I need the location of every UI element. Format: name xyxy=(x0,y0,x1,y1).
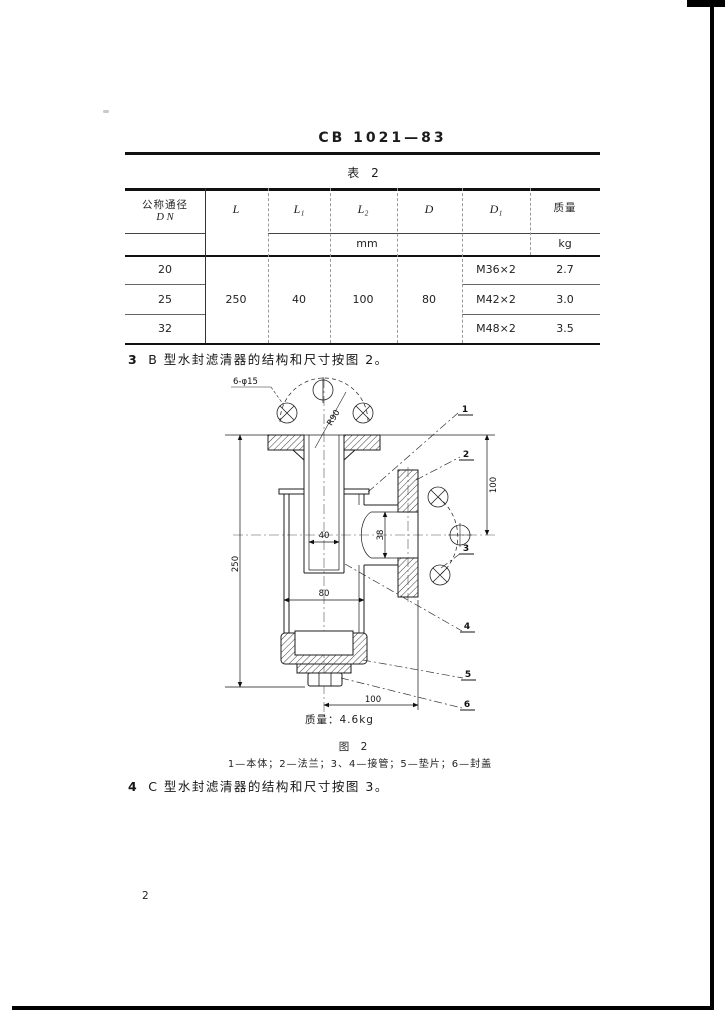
section-4-number: 4 xyxy=(128,779,138,794)
scanned-standard-page: CB 1021—83 表 2 公称通径 D N L L₁ L₂ D D₁ 质量 … xyxy=(0,0,725,1024)
scan-edge-bottom xyxy=(12,1006,714,1010)
cell-thread-0: M36×2 xyxy=(476,263,516,276)
scan-speck xyxy=(103,110,109,113)
cell-dn-20: 20 xyxy=(158,263,172,276)
col-header-mass: 质量 xyxy=(554,200,577,215)
cell-thread-1: M42×2 xyxy=(476,293,516,306)
table-title: 表 2 xyxy=(347,164,382,181)
cell-mass-1: 3.0 xyxy=(556,293,574,306)
cell-l1-merged: 40 xyxy=(292,293,306,306)
dim-port-38: 38 xyxy=(376,530,386,541)
dim-tube-40: 40 xyxy=(319,531,330,541)
dim-bolt-circle-radius: R90 xyxy=(325,408,342,427)
callout-5: 5 xyxy=(465,670,471,680)
col-header-l1: L₁ xyxy=(294,202,305,217)
col-header-l: L xyxy=(233,202,240,217)
cell-l-merged: 250 xyxy=(226,293,247,306)
section-4-text: C 型水封滤清器的结构和尺寸按图 3。 xyxy=(148,779,389,794)
figure-caption: 图 2 xyxy=(339,739,372,754)
cell-thread-2: M48×2 xyxy=(476,322,516,335)
section-3-text: B 型水封滤清器的结构和尺寸按图 2。 xyxy=(148,352,388,367)
cell-dn-32: 32 xyxy=(158,322,172,335)
callout-6: 6 xyxy=(464,700,470,710)
center-lines xyxy=(233,378,497,716)
figure-mass-note: 质量：4.6kg xyxy=(305,712,374,727)
cell-mass-0: 2.7 xyxy=(556,263,574,276)
col-header-dn-symbol: D N xyxy=(156,212,173,223)
top-flange xyxy=(225,435,495,460)
page-number: 2 xyxy=(142,890,150,902)
col-header-d: D xyxy=(425,202,434,217)
unit-kg: kg xyxy=(558,237,571,250)
section-4-paragraph: 4C 型水封滤清器的结构和尺寸按图 3。 xyxy=(128,776,389,795)
figure-2-drawing: 6-φ15 R90 xyxy=(205,372,515,722)
dimension-lines xyxy=(225,435,487,710)
col-header-l2: L₂ xyxy=(358,202,369,217)
dim-offset-100: 100 xyxy=(365,695,381,705)
bottom-cap xyxy=(281,631,367,686)
figure-legend: 1—本体；2—法兰；3、4—接管；5—垫片；6—封盖 xyxy=(228,755,492,770)
cell-l2-merged: 100 xyxy=(353,293,374,306)
callout-2: 2 xyxy=(463,450,469,460)
dim-height-250: 250 xyxy=(231,556,241,572)
scan-edge-right xyxy=(710,0,714,1010)
cell-d-merged: 80 xyxy=(422,293,436,306)
section-3-paragraph: 3B 型水封滤清器的结构和尺寸按图 2。 xyxy=(128,349,389,368)
callout-4: 4 xyxy=(464,622,470,632)
scan-corner-mark xyxy=(687,0,725,7)
header-rule xyxy=(125,152,600,155)
dim-side-100: 100 xyxy=(489,477,499,493)
standard-code: CB 1021—83 xyxy=(145,130,620,146)
cell-mass-2: 3.5 xyxy=(556,322,574,335)
side-bolt-holes xyxy=(428,487,472,585)
section-3-number: 3 xyxy=(128,352,138,367)
table-2: 公称通径 D N L L₁ L₂ D D₁ 质量 mm kg 20 25 32 … xyxy=(125,188,600,345)
cell-dn-25: 25 xyxy=(158,293,172,306)
callout-3: 3 xyxy=(463,544,469,554)
col-header-d1: D₁ xyxy=(490,202,503,217)
unit-mm: mm xyxy=(356,237,377,250)
dim-bolt-holes: 6-φ15 xyxy=(233,377,258,387)
dim-body-80: 80 xyxy=(319,589,330,599)
col-header-dn: 公称通径 xyxy=(142,197,188,212)
callout-1: 1 xyxy=(462,405,468,415)
